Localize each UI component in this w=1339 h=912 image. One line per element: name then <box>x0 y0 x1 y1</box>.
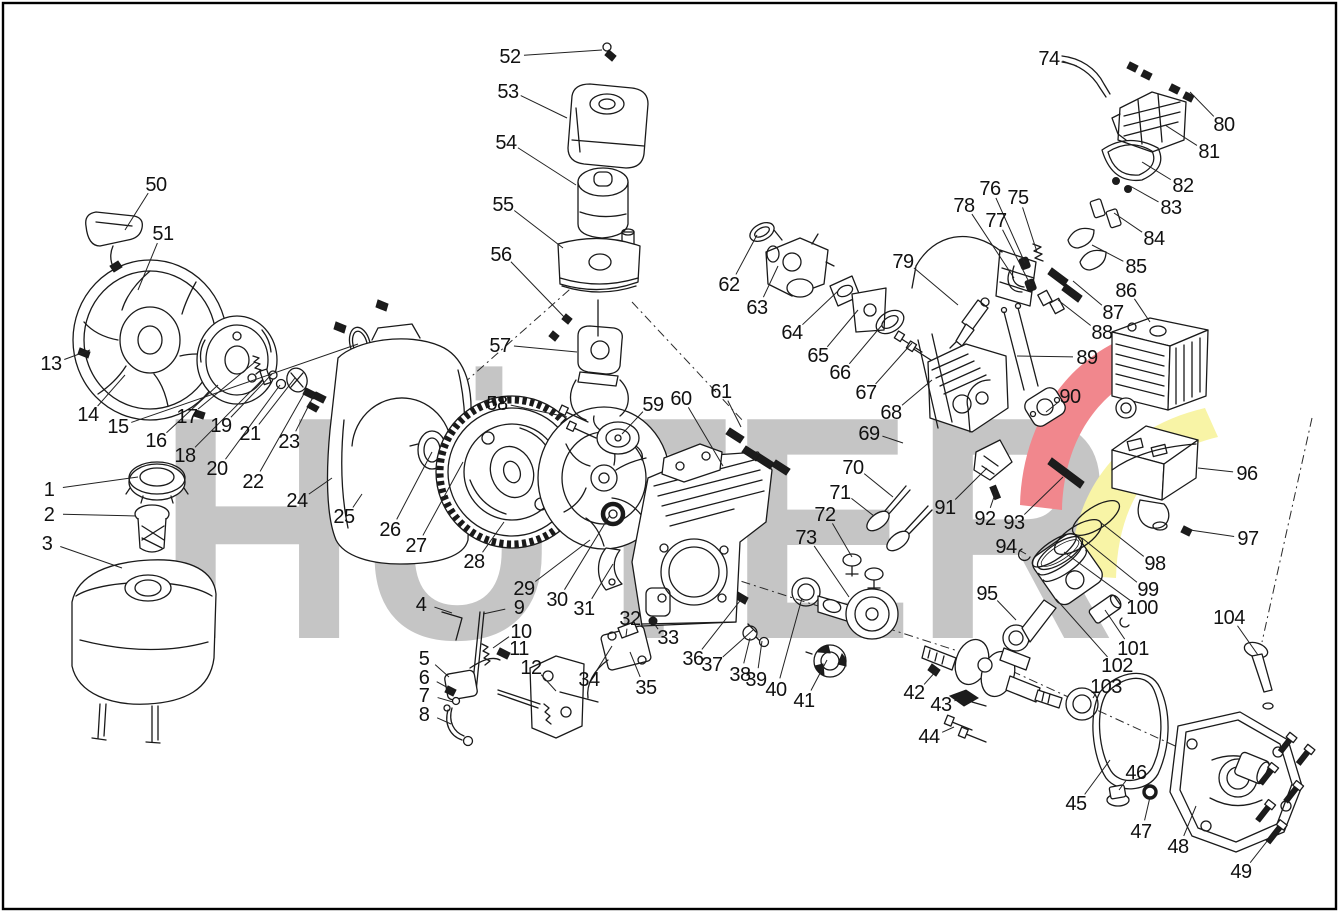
part-callout-8: 8 <box>419 704 430 726</box>
part-callout-63: 63 <box>746 297 768 319</box>
part-callout-86: 86 <box>1115 280 1137 302</box>
part-callout-39: 39 <box>745 669 767 691</box>
part-callout-15: 15 <box>107 416 129 438</box>
part-callout-23: 23 <box>278 431 300 453</box>
part-callout-40: 40 <box>765 679 787 701</box>
starter-reel <box>197 316 277 404</box>
part-callout-17: 17 <box>176 406 198 428</box>
part-callout-88: 88 <box>1091 322 1113 344</box>
part-callout-48: 48 <box>1167 836 1189 858</box>
part-callout-45: 45 <box>1065 793 1087 815</box>
part-callout-28: 28 <box>463 551 485 573</box>
part-callout-22: 22 <box>242 471 264 493</box>
part-callout-9: 9 <box>514 597 525 619</box>
part-callout-44: 44 <box>918 726 940 748</box>
part-callout-53: 53 <box>497 81 519 103</box>
part-callout-61: 61 <box>710 381 732 403</box>
part-callout-100: 100 <box>1126 597 1158 619</box>
part-callout-78: 78 <box>953 195 975 217</box>
part-callout-47: 47 <box>1130 821 1152 843</box>
part-callout-2: 2 <box>44 504 55 526</box>
part-callout-19: 19 <box>210 415 232 437</box>
part-callout-27: 27 <box>405 535 427 557</box>
part-callout-41: 41 <box>793 690 815 712</box>
part-callout-91: 91 <box>934 497 956 519</box>
part-callout-42: 42 <box>903 682 925 704</box>
part-callout-97: 97 <box>1237 528 1259 550</box>
part-callout-54: 54 <box>495 132 517 154</box>
part-callout-66: 66 <box>829 362 851 384</box>
part-callout-14: 14 <box>77 404 99 426</box>
part-callout-79: 79 <box>892 251 914 273</box>
part-callout-49: 49 <box>1230 861 1252 883</box>
part-callout-20: 20 <box>206 458 228 480</box>
part-callout-68: 68 <box>880 402 902 424</box>
part-callout-103: 103 <box>1090 676 1122 698</box>
part-callout-58: 58 <box>486 393 508 415</box>
air-filter-cover <box>568 84 648 168</box>
air-filter-element <box>578 168 628 238</box>
part-callout-65: 65 <box>807 345 829 367</box>
part-callout-4: 4 <box>416 594 427 616</box>
part-callout-77: 77 <box>985 210 1007 232</box>
part-callout-32: 32 <box>619 608 641 630</box>
part-callout-64: 64 <box>781 322 803 344</box>
fuel-filter-cup <box>135 505 169 552</box>
part-callout-80: 80 <box>1213 114 1235 136</box>
part-callout-18: 18 <box>174 445 196 467</box>
part-callout-71: 71 <box>829 482 851 504</box>
part-callout-74: 74 <box>1038 48 1060 70</box>
part-callout-1: 1 <box>44 479 55 501</box>
part-callout-104: 104 <box>1213 607 1245 629</box>
part-callout-84: 84 <box>1143 228 1165 250</box>
part-callout-102: 102 <box>1101 655 1133 677</box>
part-callout-51: 51 <box>152 223 174 245</box>
part-callout-95: 95 <box>976 583 998 605</box>
part-callout-75: 75 <box>1007 187 1029 209</box>
part-callout-92: 92 <box>974 508 996 530</box>
part-callout-3: 3 <box>42 533 53 555</box>
part-callout-34: 34 <box>578 669 600 691</box>
part-callout-62: 62 <box>718 274 740 296</box>
part-callout-30: 30 <box>546 589 568 611</box>
part-callout-29: 29 <box>513 578 535 600</box>
part-callout-25: 25 <box>333 506 355 528</box>
part-callout-57: 57 <box>489 335 511 357</box>
part-callout-43: 43 <box>930 694 952 716</box>
part-callout-67: 67 <box>855 382 877 404</box>
part-callout-59: 59 <box>642 394 664 416</box>
part-callout-85: 85 <box>1125 256 1147 278</box>
part-callout-96: 96 <box>1236 463 1258 485</box>
part-callout-21: 21 <box>239 423 261 445</box>
part-callout-12: 12 <box>520 657 542 679</box>
part-callout-31: 31 <box>573 598 595 620</box>
part-callout-98: 98 <box>1144 553 1166 575</box>
part-callout-26: 26 <box>379 519 401 541</box>
part-callout-60: 60 <box>670 388 692 410</box>
part-callout-52: 52 <box>499 46 521 68</box>
part-callout-69: 69 <box>858 423 880 445</box>
part-callout-56: 56 <box>490 244 512 266</box>
part-callout-70: 70 <box>842 457 864 479</box>
part-callout-81: 81 <box>1198 141 1220 163</box>
part-callout-72: 72 <box>814 504 836 526</box>
part-callout-55: 55 <box>492 194 514 216</box>
part-callout-94: 94 <box>995 536 1017 558</box>
part-callout-76: 76 <box>979 178 1001 200</box>
part-callout-89: 89 <box>1076 347 1098 369</box>
part-callout-35: 35 <box>635 677 657 699</box>
part-callout-24: 24 <box>286 490 308 512</box>
part-callout-83: 83 <box>1160 197 1182 219</box>
part-callout-13: 13 <box>40 353 62 375</box>
part-callout-50: 50 <box>145 174 167 196</box>
part-callout-82: 82 <box>1172 175 1194 197</box>
exploded-parts-diagram: HÜTER <box>0 0 1339 912</box>
part-callout-37: 37 <box>701 654 723 676</box>
part-callout-93: 93 <box>1003 512 1025 534</box>
part-callout-73: 73 <box>795 527 817 549</box>
part-callout-90: 90 <box>1059 386 1081 408</box>
part-callout-16: 16 <box>145 430 167 452</box>
part-callout-87: 87 <box>1102 302 1124 324</box>
part-callout-33: 33 <box>657 627 679 649</box>
intake-spacer <box>852 288 886 332</box>
part-callout-46: 46 <box>1125 762 1147 784</box>
